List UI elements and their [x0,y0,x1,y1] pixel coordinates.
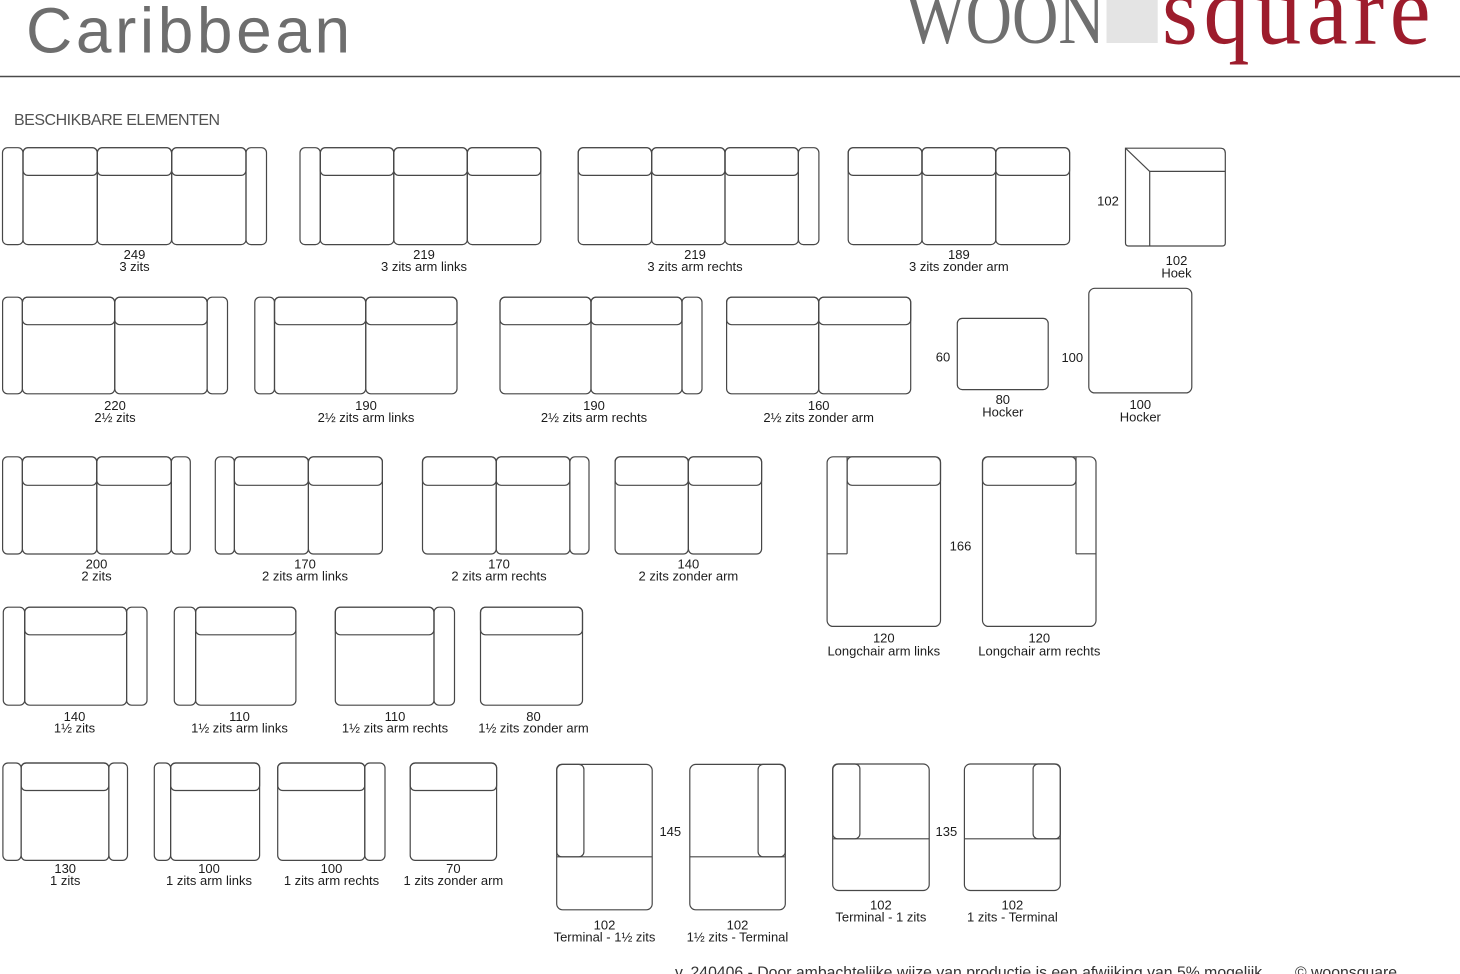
svg-text:1 zits arm links: 1 zits arm links [166,873,252,888]
svg-text:100: 100 [1061,350,1083,365]
svg-text:v. 240406 - Door ambachtelijke: v. 240406 - Door ambachtelijke wijze van… [675,965,1267,974]
svg-text:Caribbean: Caribbean [26,0,354,67]
svg-text:3 zits arm links: 3 zits arm links [381,259,467,274]
svg-text:3 zits zonder arm: 3 zits zonder arm [909,259,1009,274]
svg-text:60: 60 [936,350,950,365]
svg-text:1 zits arm rechts: 1 zits arm rechts [284,873,380,888]
svg-text:102: 102 [1097,194,1119,209]
svg-text:Longchair arm rechts: Longchair arm rechts [978,644,1101,659]
svg-text:166: 166 [950,539,972,554]
svg-text:2 zits arm links: 2 zits arm links [262,568,348,583]
svg-text:2½ zits arm links: 2½ zits arm links [318,410,415,425]
svg-text:BESCHIKBARE ELEMENTEN: BESCHIKBARE ELEMENTEN [14,112,220,129]
svg-text:3 zits: 3 zits [119,259,150,274]
svg-text:WOON: WOON [905,0,1105,60]
svg-text:Terminal - 1½ zits: Terminal - 1½ zits [554,929,656,944]
svg-text:145: 145 [659,824,681,839]
svg-text:3 zits arm rechts: 3 zits arm rechts [647,259,743,274]
svg-text:2½ zits: 2½ zits [94,410,136,425]
svg-text:2½ zits zonder arm: 2½ zits zonder arm [763,410,874,425]
svg-text:© woonsquare: © woonsquare [1295,965,1397,974]
svg-text:1½ zits - Terminal: 1½ zits - Terminal [687,929,789,944]
svg-text:1½ zits arm links: 1½ zits arm links [191,721,288,736]
svg-text:Hocker: Hocker [982,405,1024,420]
svg-text:Terminal - 1 zits: Terminal - 1 zits [835,909,927,924]
svg-text:135: 135 [936,824,958,839]
svg-text:1 zits zonder arm: 1 zits zonder arm [404,873,504,888]
svg-text:2½ zits arm rechts: 2½ zits arm rechts [541,410,648,425]
svg-text:2 zits arm rechts: 2 zits arm rechts [451,568,547,583]
svg-text:Hoek: Hoek [1161,266,1192,281]
svg-text:square: square [1162,0,1436,65]
svg-text:1 zits - Terminal: 1 zits - Terminal [967,909,1058,924]
svg-text:Hocker: Hocker [1120,409,1162,424]
svg-text:2 zits: 2 zits [81,568,112,583]
svg-text:1½ zits: 1½ zits [54,721,96,736]
svg-text:1½ zits arm rechts: 1½ zits arm rechts [342,721,449,736]
svg-text:2 zits zonder arm: 2 zits zonder arm [639,568,739,583]
svg-text:1½ zits zonder arm: 1½ zits zonder arm [478,721,589,736]
svg-text:Longchair arm links: Longchair arm links [827,644,940,659]
svg-text:1 zits: 1 zits [50,873,81,888]
